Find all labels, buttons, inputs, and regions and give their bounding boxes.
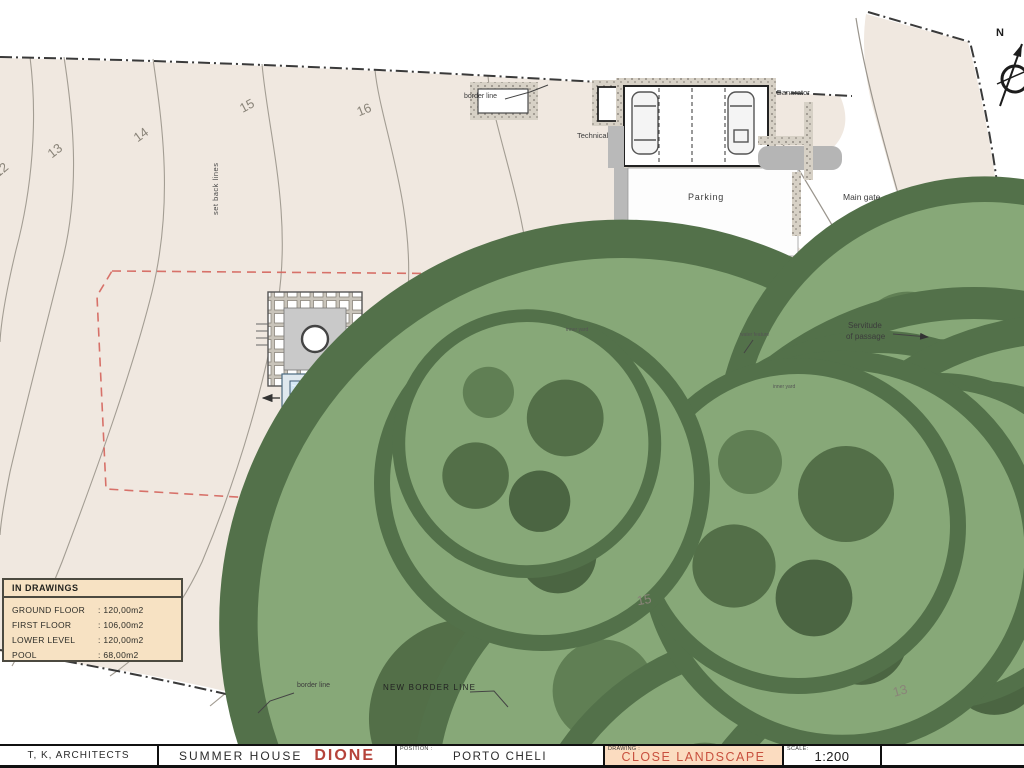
title-block: T, K, ARCHITECTS SUMMER HOUSE DIONE POSI… [0, 744, 1024, 768]
driveway [758, 146, 842, 170]
servitude-label-line1: Servitude [848, 322, 882, 331]
stone-wall [792, 172, 801, 236]
border-line-bottom-label: border line [297, 682, 330, 690]
blank-cell [880, 746, 1024, 765]
legend-row-value: : 120,00m2 [98, 633, 144, 648]
technical-label: Technical [577, 132, 608, 140]
stone-wall [804, 102, 813, 180]
scale-cell: SCALE: 1:200 [782, 746, 880, 765]
north-arrow-icon [997, 44, 1024, 106]
legend-row: FIRST FLOOR : 106,00m2 [12, 618, 173, 633]
scale-label: SCALE: [787, 746, 808, 752]
architect-cell: T, K, ARCHITECTS [0, 746, 157, 765]
position-value: PORTO CHELI [453, 751, 547, 763]
parking-label: Parking [688, 193, 724, 203]
project-label: SUMMER HOUSE [179, 749, 302, 763]
fire-pit [302, 326, 328, 352]
legend-row-name: GROUND FLOOR [12, 603, 98, 618]
legend-row: GROUND FLOOR : 120,00m2 [12, 603, 173, 618]
main-gate-label: Main gate [843, 193, 880, 202]
car [728, 92, 754, 154]
position-label: POSITION : [400, 746, 432, 752]
legend-row-value: : 68,00m2 [98, 648, 139, 663]
project-cell: SUMMER HOUSE DIONE [157, 746, 395, 765]
contour-label-15-bottom: 15 [636, 592, 653, 609]
car [632, 92, 658, 154]
new-border-line-label: NEW BORDER LINE [383, 684, 476, 693]
border-line-top-label: border line [464, 93, 497, 101]
generator-label: Ganarator [776, 89, 810, 97]
legend-row-name: LOWER LEVEL [12, 633, 98, 648]
legend-row-name: POOL [12, 648, 98, 663]
legend-row-value: : 106,00m2 [98, 618, 144, 633]
servitude-label-line2: of passage [846, 333, 885, 342]
north-label: N [996, 27, 1004, 39]
legend-row-name: FIRST FLOOR [12, 618, 98, 633]
drawing-cell: DRAWING : CLOSE LANDSCAPE [603, 746, 782, 765]
position-cell: POSITION : PORTO CHELI [395, 746, 603, 765]
scale-value: 1:200 [814, 749, 849, 764]
legend-row: LOWER LEVEL : 120,00m2 [12, 633, 173, 648]
site-plan-screenshot: 12 13 14 15 16 15 13 set back lines bord… [0, 0, 1024, 768]
areas-legend: IN DRAWINGS GROUND FLOOR : 120,00m2 FIRS… [2, 578, 183, 662]
legend-row: POOL : 68,00m2 [12, 648, 173, 663]
architect-name: T, K, ARCHITECTS [27, 750, 129, 761]
drawing-title: CLOSE LANDSCAPE [621, 750, 765, 764]
project-name: DIONE [314, 747, 375, 765]
inner-yard-right-label: inner yard [773, 385, 795, 391]
legend-row-value: : 120,00m2 [98, 603, 144, 618]
legend-rows: GROUND FLOOR : 120,00m2 FIRST FLOOR : 10… [4, 598, 181, 663]
inner-yard-top-label: inner yard [566, 328, 588, 334]
legend-header: IN DRAWINGS [4, 580, 181, 598]
drawing-label: DRAWING : [608, 746, 640, 752]
set-back-lines-label: set back lines [212, 163, 220, 215]
water-feature-label: water feature [740, 333, 769, 339]
